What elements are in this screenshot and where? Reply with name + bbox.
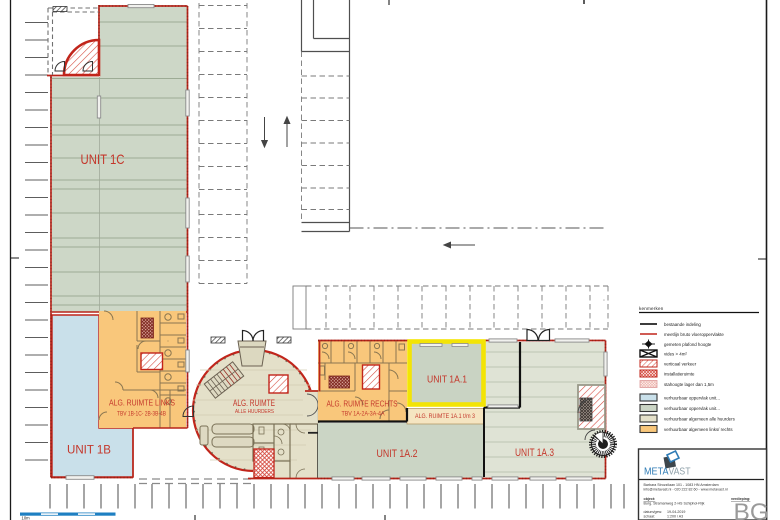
svg-text:meetlijn bruto vloeroppervlakt: meetlijn bruto vloeroppervlakte (664, 332, 724, 337)
svg-text:ALG. RUIMTE 1A.1 t/m 3: ALG. RUIMTE 1A.1 t/m 3 (415, 413, 475, 420)
svg-text:TBV 1B-1C- 2B-3B-4B: TBV 1B-1C- 2B-3B-4B (117, 412, 166, 418)
svg-text:UNIT 1A.1: UNIT 1A.1 (427, 374, 467, 386)
svg-text:info@metavast.nl - 020 222 82: info@metavast.nl - 020 222 82 60 - www.m… (644, 488, 728, 492)
svg-text:1:200 / A3: 1:200 / A3 (667, 515, 683, 519)
svg-text:UNIT 1A.3: UNIT 1A.3 (515, 447, 554, 459)
svg-text:ALG. RUIMTE LINKS: ALG. RUIMTE LINKS (109, 398, 175, 408)
svg-text:META: META (644, 466, 669, 478)
svg-text:UNIT 1B: UNIT 1B (67, 445, 111, 457)
svg-text:gemeten plafond hoogte: gemeten plafond hoogte (664, 342, 712, 347)
svg-text:verticaal verkeer: verticaal verkeer (664, 362, 697, 367)
svg-text:VAST: VAST (669, 466, 691, 478)
svg-text:Barbara Strozzilaan 101 - 1083: Barbara Strozzilaan 101 - 1083 HN Amster… (644, 483, 719, 487)
svg-text:ALLE HUURDERS: ALLE HUURDERS (235, 409, 274, 415)
svg-text:stahoogte lager dan 1,5m: stahoogte lager dan 1,5m (664, 382, 714, 387)
svg-text:ALG. RUIMTE RECHTS: ALG. RUIMTE RECHTS (327, 399, 398, 409)
svg-text:verhuurbaar oppervlak unit...: verhuurbaar oppervlak unit... (664, 406, 720, 411)
svg-text:datum/gew:: datum/gew: (644, 510, 663, 514)
svg-text:Burg. Stramanweg 2-HS Schiphol: Burg. Stramanweg 2-HS Schiphol-Rijk (644, 502, 705, 506)
svg-text:UNIT 1A.2: UNIT 1A.2 (377, 448, 418, 460)
svg-text:installatieruimte: installatieruimte (664, 372, 695, 377)
svg-text:10m: 10m (22, 516, 31, 520)
svg-text:ALG. RUIMTE: ALG. RUIMTE (233, 398, 275, 408)
svg-text:schaal:: schaal: (644, 515, 655, 519)
svg-text:TBV 1A-2A-3A-4A: TBV 1A-2A-3A-4A (342, 412, 385, 418)
svg-text:verhuurbaar algemeen links/ re: verhuurbaar algemeen links/ rechts (664, 427, 733, 432)
svg-text:verhuurbaar algemeen alle huur: verhuurbaar algemeen alle huurders (664, 417, 736, 422)
svg-text:19-04-2019: 19-04-2019 (667, 510, 685, 514)
svg-text:BG: BG (734, 499, 769, 520)
svg-text:kenmerken: kenmerken (639, 306, 664, 311)
svg-text:object:: object: (644, 497, 656, 501)
svg-text:UNIT 1C: UNIT 1C (81, 151, 125, 167)
svg-text:bestaande indeling: bestaande indeling (664, 322, 701, 327)
svg-text:vides > 4m²: vides > 4m² (664, 352, 687, 357)
svg-text:verhuurbaar oppervlak unit...: verhuurbaar oppervlak unit... (664, 396, 720, 401)
